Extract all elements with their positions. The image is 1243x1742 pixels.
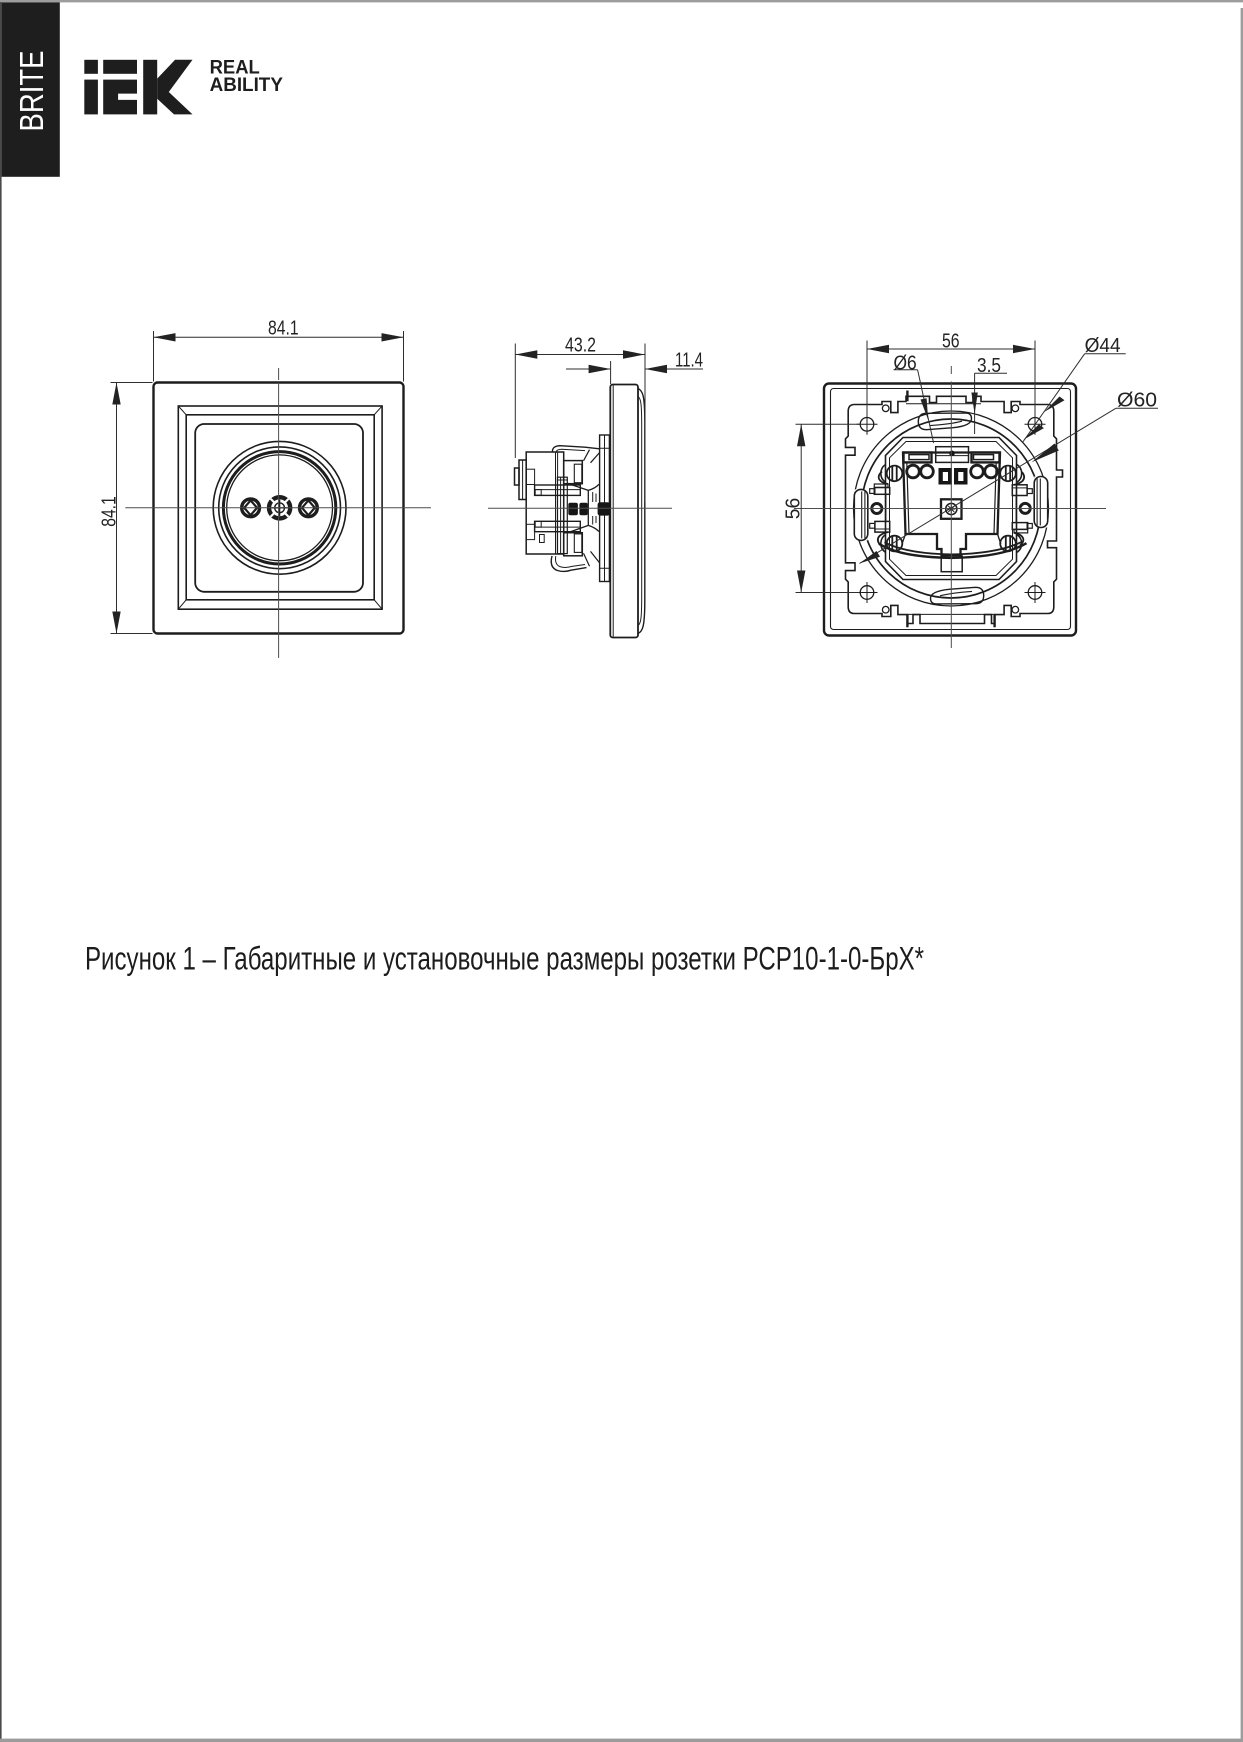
svg-text:Ø60: Ø60 [1117,388,1157,411]
svg-text:84.1: 84.1 [268,317,299,340]
svg-text:43.2: 43.2 [565,334,596,357]
svg-text:Ø44: Ø44 [1085,334,1121,357]
svg-text:3.5: 3.5 [977,354,1001,377]
svg-text:Рисунок 1 – Габаритные и устан: Рисунок 1 – Габаритные и установочные ра… [85,941,924,977]
svg-text:ABILITY: ABILITY [210,75,284,96]
svg-text:56: 56 [942,330,960,353]
svg-text:84.1: 84.1 [98,496,121,527]
svg-text:Ø6: Ø6 [894,351,917,374]
svg-text:11.4: 11.4 [675,348,703,371]
svg-text:56: 56 [781,498,804,520]
svg-text:BRITE: BRITE [13,51,50,132]
